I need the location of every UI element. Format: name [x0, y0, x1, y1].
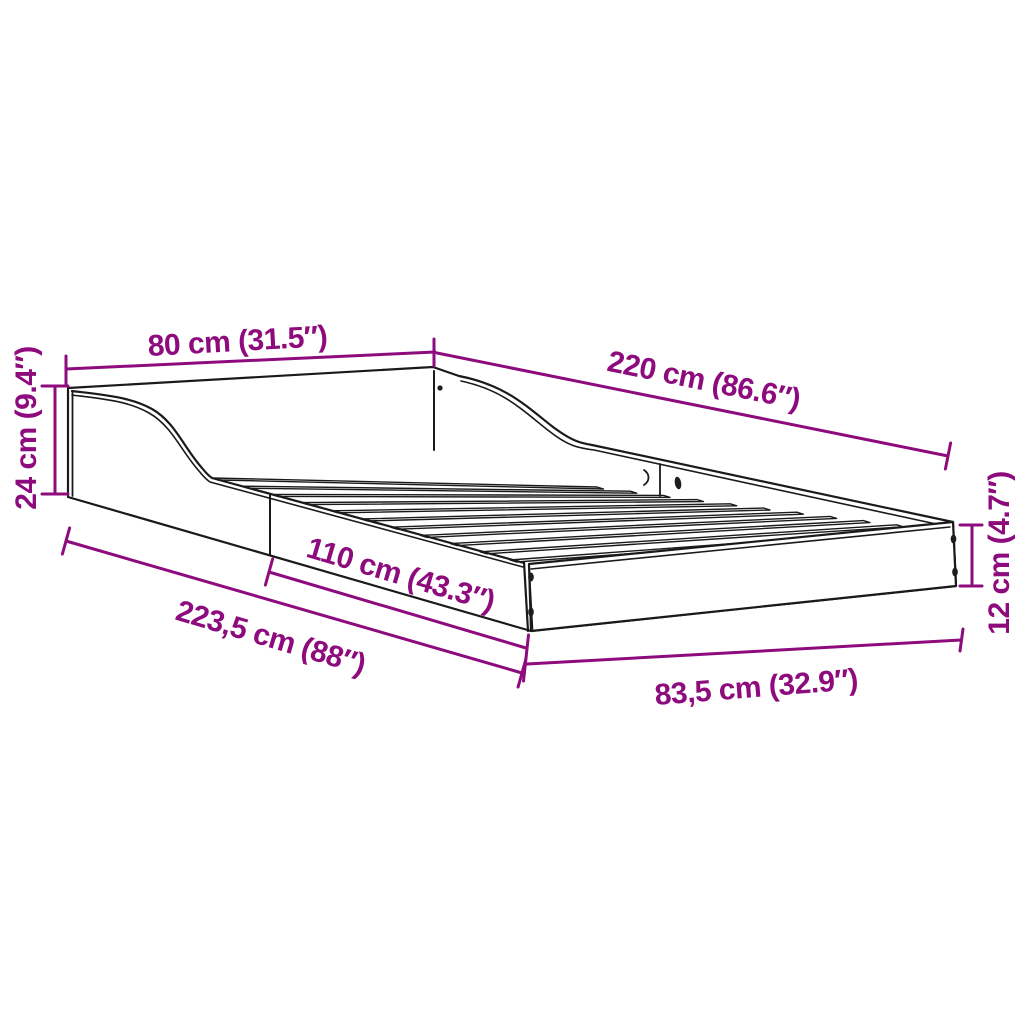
diagram-canvas: 80 cm (31.5″) 220 cm (86.6″) 24 cm (9.4″… — [0, 0, 1024, 1024]
dimension-tick — [960, 629, 963, 651]
bed-frame-dimension-diagram: 80 cm (31.5″) 220 cm (86.6″) 24 cm (9.4″… — [0, 0, 1024, 1024]
screw — [437, 385, 442, 390]
screw — [528, 573, 534, 582]
bed-frame-drawing — [68, 367, 956, 631]
screw — [528, 608, 534, 617]
screw — [952, 568, 958, 577]
dimension-height-head — [42, 386, 68, 494]
screw — [951, 535, 957, 544]
label-length-total: 223,5 cm (88″) — [172, 594, 369, 681]
label-height-foot: 12 cm (4.7″) — [983, 471, 1016, 634]
label-width-head: 80 cm (31.5″) — [147, 320, 328, 363]
dimension-line — [527, 640, 961, 664]
label-width-foot: 83,5 cm (32.9″) — [653, 663, 859, 712]
label-height-head: 24 cm (9.4″) — [10, 346, 43, 509]
dimension-width-foot — [527, 629, 963, 664]
slat — [272, 494, 670, 497]
dimension-height-foot — [960, 525, 982, 586]
